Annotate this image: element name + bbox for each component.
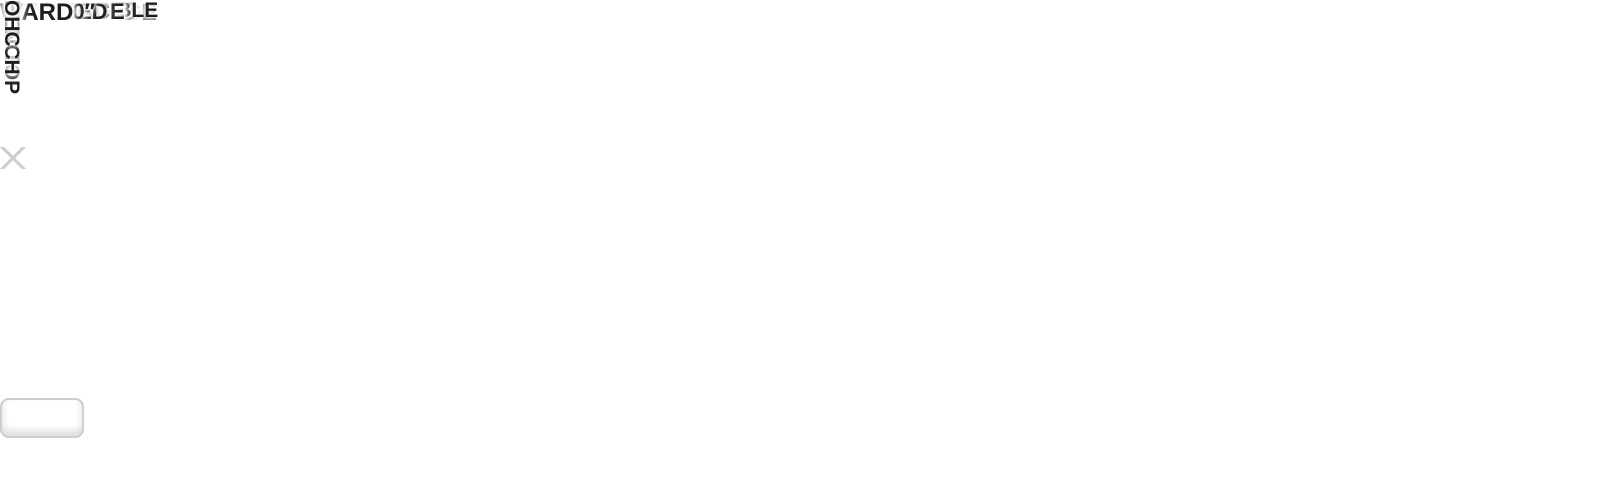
- front-ohc-label: OHC: [0, 0, 22, 47]
- burner-icon: [0, 147, 26, 169]
- pillow-icon: [0, 398, 84, 438]
- rv-floorplan: SLIDE TRAY OHC MICRO OHC OHC BAR TOP FRI…: [0, 0, 1600, 485]
